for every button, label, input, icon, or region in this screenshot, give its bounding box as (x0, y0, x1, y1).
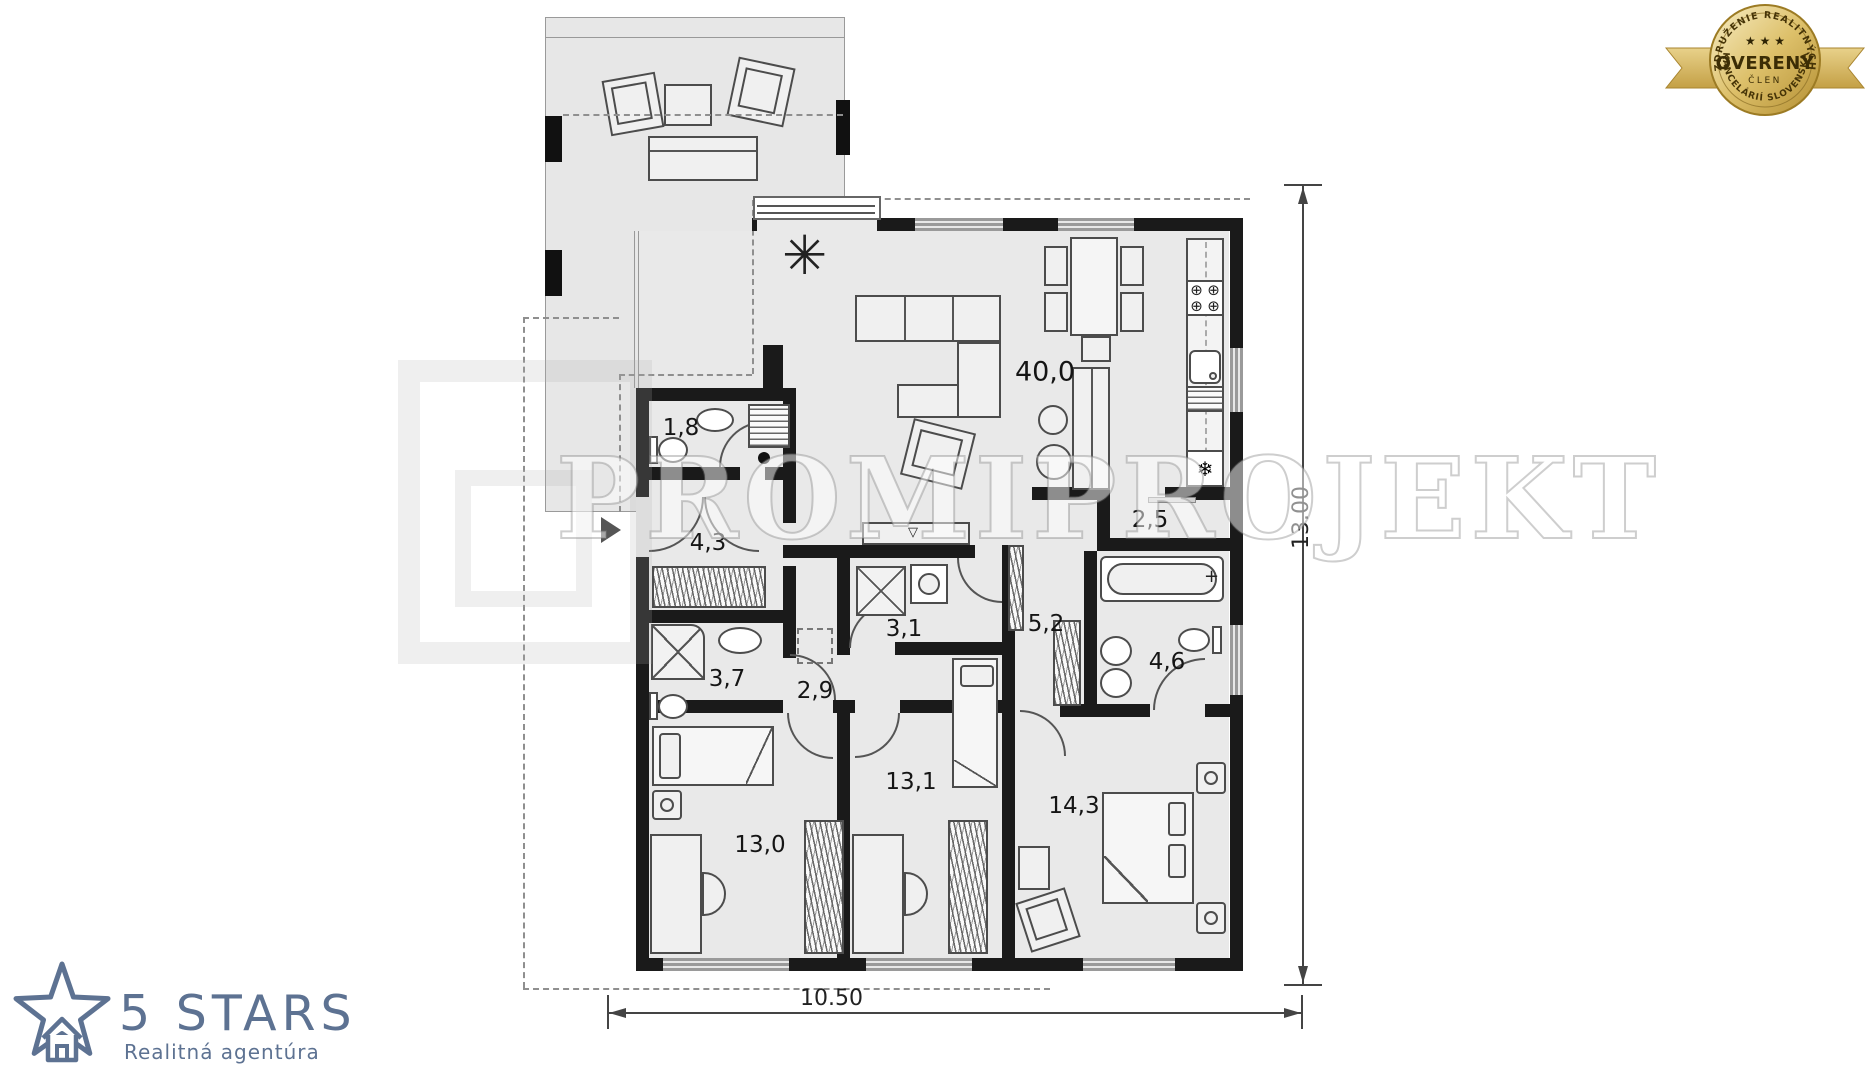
tap-icon: + (1204, 566, 1219, 587)
dimension-arrow-icon (1284, 1008, 1301, 1018)
room-label-master: 14,3 (1048, 793, 1099, 819)
toilet-bowl (658, 694, 688, 719)
floor-plan-page: ✳ ▽ ⊕⊕⊕⊕ ❄ + (0, 0, 1866, 1080)
dimension-tick (1301, 995, 1303, 1029)
dimension-width-label: 10.50 (800, 986, 863, 1011)
dining-chair (1081, 336, 1111, 362)
sofa-corner (957, 342, 1001, 418)
desk (852, 834, 904, 954)
shower (856, 566, 906, 616)
room-label-living: 40,0 (1015, 357, 1075, 388)
toilet-tank (649, 692, 658, 720)
window (915, 218, 1003, 231)
desk (650, 834, 702, 954)
sofa (855, 295, 1001, 342)
burner-icon: ⊕ (1205, 298, 1222, 314)
terrace-table (664, 84, 712, 126)
attic-hatch (797, 628, 833, 664)
wc-sink (696, 408, 734, 432)
nightstand (1196, 902, 1226, 934)
washing-machine (910, 564, 948, 604)
dishwasher (1186, 386, 1224, 412)
agency-name: 5 STARS (119, 985, 357, 1042)
wall (636, 610, 796, 623)
wall (895, 642, 1015, 655)
dimension-arrow-icon (609, 1008, 626, 1018)
window (1083, 958, 1175, 971)
burner-icon: ⊕ (1205, 282, 1222, 298)
wall (837, 558, 850, 655)
window (1230, 348, 1243, 412)
side-table (1018, 846, 1050, 890)
nightstand (1196, 762, 1226, 794)
bath-sink (1100, 636, 1132, 666)
wall (1084, 551, 1097, 717)
dimension-line-height (1302, 185, 1304, 985)
terrace-armchair (602, 72, 665, 137)
roof-overhang-dashed (523, 988, 1050, 990)
wall (837, 642, 850, 655)
terrace-pillar (545, 250, 562, 296)
dining-chair (1120, 292, 1144, 332)
coffee-table (897, 384, 959, 418)
agency-tagline: Realitná agentúra (124, 1040, 320, 1064)
dining-chair (1044, 292, 1068, 332)
burner-icon: ⊕ (1188, 298, 1205, 314)
badge-subtitle: ČLEN (1748, 74, 1782, 86)
terrace-pillar (545, 116, 562, 162)
terrace-armchair (726, 57, 795, 128)
kitchen-sink (1189, 350, 1221, 384)
plant-icon: ✳ (782, 224, 827, 287)
roof-overhang-dashed (563, 114, 843, 116)
room-label-bedroom2: 13,1 (885, 769, 936, 795)
room-label-bedroom1: 13,0 (734, 832, 785, 858)
bed (952, 658, 998, 788)
wall (763, 345, 783, 401)
room-label-laundry: 3,1 (886, 616, 923, 642)
dining-chair (1044, 246, 1068, 286)
roof-overhang-dashed (523, 317, 619, 319)
nightstand (652, 790, 682, 820)
badge-title: OVERENÝ (1716, 52, 1815, 74)
double-bed (1102, 792, 1194, 904)
dining-chair (1120, 246, 1144, 286)
wall (783, 623, 796, 658)
dimension-tick (1284, 184, 1322, 186)
bath-sink (718, 627, 762, 654)
verified-badge: ZDRUŽENIE REALITNÝCH KANCELÁRIÍ SLOVENSK… (1662, 2, 1866, 124)
terrace-pillar (836, 100, 850, 155)
wall (1084, 704, 1150, 717)
terrace-sofa (648, 136, 758, 181)
dimension-arrow-icon (1298, 966, 1308, 983)
window (663, 958, 789, 971)
terrace-sliding-door (753, 196, 881, 220)
window (1230, 625, 1243, 695)
room-label-corridor: 5,2 (1028, 611, 1065, 637)
wall (833, 700, 855, 713)
terrace-roof-line (545, 37, 845, 38)
stove-burners-icon: ⊕⊕⊕⊕ (1186, 280, 1224, 316)
toilet-tank (1212, 626, 1222, 654)
bed (652, 726, 774, 786)
watermark-text: PROMIPROJEKT (556, 434, 1661, 565)
badge-stars-icon: ★ ★ ★ (1745, 34, 1785, 48)
wardrobe (948, 820, 988, 954)
window (1058, 218, 1134, 231)
wall (1205, 704, 1243, 717)
dimension-line-width (608, 1012, 1302, 1014)
room-label-bathroom2: 4,6 (1149, 649, 1186, 675)
agency-logo (10, 960, 116, 1072)
dining-table (1070, 237, 1118, 336)
shower (651, 624, 705, 680)
room-label-inner-hall: 2,9 (797, 678, 834, 704)
bath-sink (1100, 668, 1132, 698)
room-label-bathroom: 3,7 (709, 666, 746, 692)
burner-icon: ⊕ (1188, 282, 1205, 298)
dimension-tick (1284, 984, 1322, 986)
stool (1038, 405, 1068, 435)
wardrobe (804, 820, 844, 954)
dimension-arrow-icon (1298, 187, 1308, 204)
hall-wardrobe (652, 566, 766, 608)
wall (1230, 218, 1243, 971)
window (866, 958, 972, 971)
